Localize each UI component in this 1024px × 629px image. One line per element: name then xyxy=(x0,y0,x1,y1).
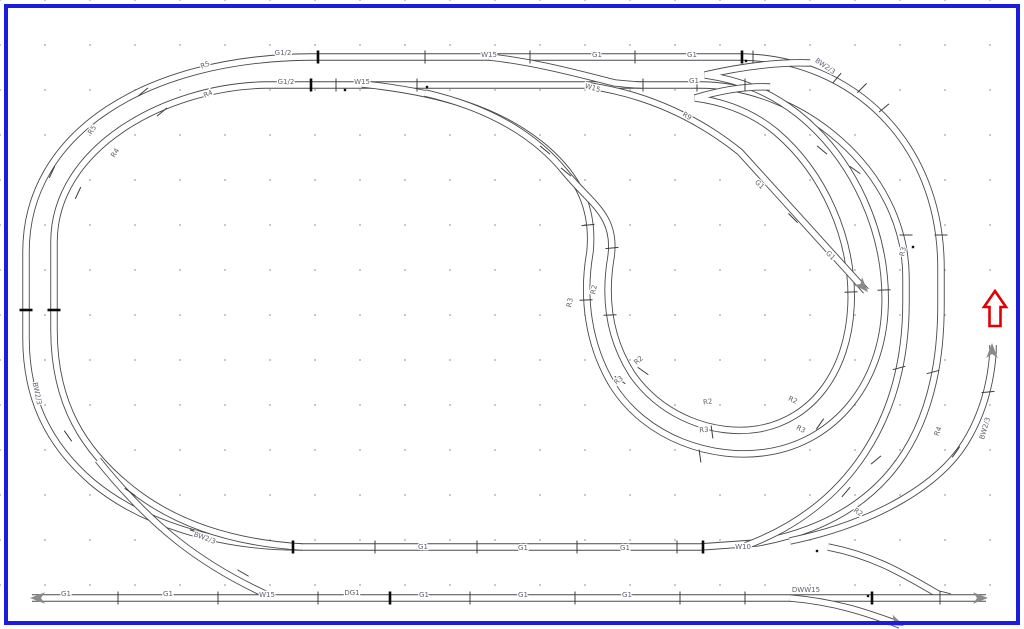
turnout-indicator-dot xyxy=(912,246,914,248)
track-piece-label: R2 xyxy=(633,354,645,366)
track-piece-label: R4 xyxy=(109,146,121,159)
track-piece-label: W15 xyxy=(259,591,275,599)
track-inner-oval-base xyxy=(54,85,906,547)
track-piece-label: R4 xyxy=(933,425,944,437)
track-piece-label: R2 xyxy=(589,284,599,295)
turnout-indicator-dot xyxy=(816,550,818,552)
track-piece-label: G1 xyxy=(620,544,630,552)
rail-joint-tick xyxy=(64,431,71,442)
turnout-indicator-dot xyxy=(344,89,346,91)
track-piece-label: G1 xyxy=(592,51,602,59)
track-piece-label: G1 xyxy=(163,590,173,598)
plan-decorations: G1/2W15G1G1BW2/3G1/2W15W15G1R9R5R4R5R4G1… xyxy=(20,49,998,629)
track-piece-label: R2 xyxy=(787,395,799,406)
track-piece-label: W15 xyxy=(354,78,370,86)
rail-joint-tick xyxy=(606,247,619,248)
track-piece-label: W10 xyxy=(735,543,751,551)
rail-joint-tick xyxy=(638,367,649,374)
track-piece-label: G1/2 xyxy=(275,49,292,57)
track-teardrop-inner[interactable] xyxy=(425,87,851,431)
track-piece-label: G1/2 xyxy=(278,78,295,86)
rail-joint-tick xyxy=(871,456,881,464)
track-piece-label: G1 xyxy=(687,51,697,59)
rail-joint-tick xyxy=(879,104,889,112)
rail-joint-tick xyxy=(857,83,866,92)
track-crossover-top-fill xyxy=(489,57,642,85)
track-piece-label: G1 xyxy=(418,543,428,551)
track-piece-label: G1 xyxy=(518,544,528,552)
turnout-indicator-dot xyxy=(867,595,869,597)
track-piece-label: DG1 xyxy=(344,589,359,597)
turnout-indicator-dot xyxy=(745,60,747,62)
rail-joint-tick xyxy=(75,187,80,199)
track-piece-label: G1 xyxy=(61,590,71,598)
plan-canvas[interactable]: G1/2W15G1G1BW2/3G1/2W15W15G1R9R5R4R5R4G1… xyxy=(0,0,1024,629)
track-piece-label: W15 xyxy=(481,51,497,59)
track-riser-right-fill xyxy=(790,345,993,541)
track-connector-bottom-right[interactable] xyxy=(828,547,950,597)
track-piece-label: G1 xyxy=(419,591,429,599)
rail-joint-tick xyxy=(842,487,850,497)
track-plan-page: G1/2W15G1G1BW2/3G1/2W15W15G1R9R5R4R5R4G1… xyxy=(0,0,1024,629)
rail-joint-tick xyxy=(237,570,248,577)
red-direction-arrow[interactable] xyxy=(984,291,1006,326)
track-riser-right[interactable] xyxy=(790,345,993,541)
track-inner-oval-fill xyxy=(54,85,906,547)
track-inner-oval[interactable] xyxy=(54,85,906,547)
turnout-indicator-dot xyxy=(426,86,428,88)
track-yard-branch-right[interactable] xyxy=(790,598,900,625)
track-piece-label: DWW15 xyxy=(792,586,820,594)
track-crossover-top[interactable] xyxy=(489,57,642,85)
track-outer-oval-fill xyxy=(26,57,941,547)
track-outer-oval-base xyxy=(26,57,941,547)
track-piece-label: G1 xyxy=(689,77,699,85)
track-piece-label: G1 xyxy=(518,591,528,599)
track-teardrop-outer[interactable] xyxy=(362,63,885,454)
track-piece-label: G1 xyxy=(622,591,632,599)
track-piece-label: R3 xyxy=(699,426,709,435)
track-piece-label: R3 xyxy=(795,424,807,435)
track-piece-label: R3 xyxy=(565,297,575,308)
rail-joint-tick xyxy=(817,146,827,154)
track-yard-branch-right-fill xyxy=(790,598,900,625)
track-outer-oval[interactable] xyxy=(26,57,941,547)
track-piece-label: R2 xyxy=(703,397,713,406)
